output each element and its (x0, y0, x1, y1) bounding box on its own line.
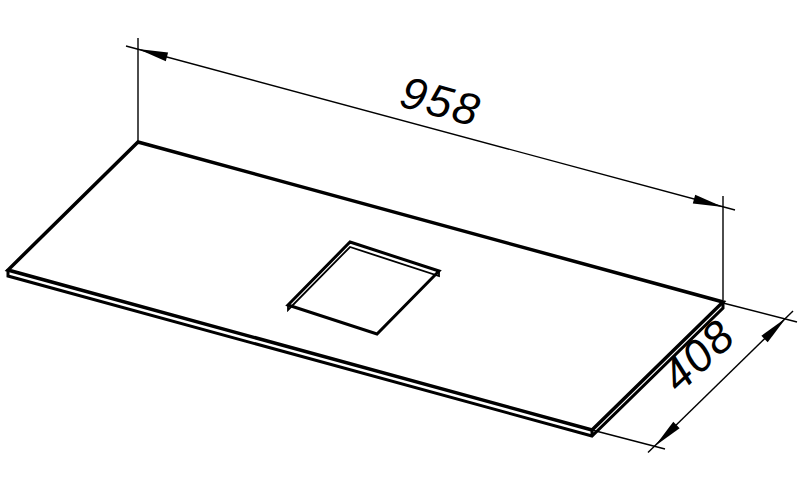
dimension-label-width: 958 (395, 66, 487, 136)
arrowhead-right-icon (693, 195, 723, 207)
drawing-canvas: 958 408 (0, 0, 800, 479)
arrowhead-bottom-icon (655, 422, 680, 446)
arrowhead-top-icon (761, 318, 786, 342)
arrowhead-left-icon (138, 49, 168, 61)
technical-drawing: 958 408 (0, 0, 800, 479)
extension-line-top (723, 303, 797, 322)
